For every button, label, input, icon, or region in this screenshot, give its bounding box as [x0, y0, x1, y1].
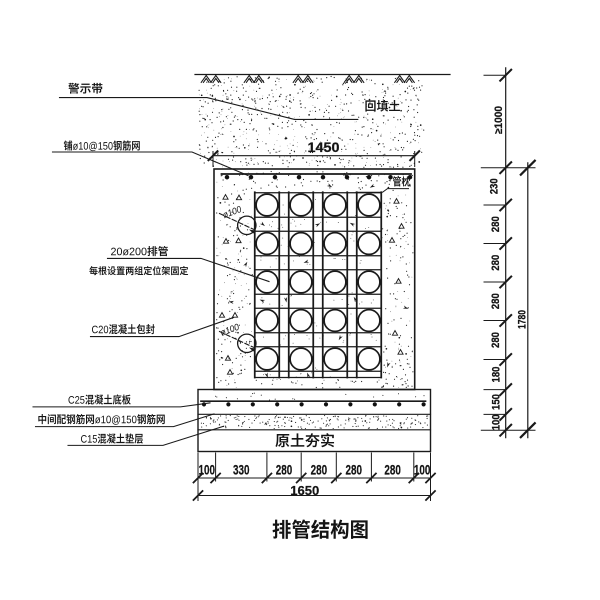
svg-text:280: 280 — [490, 216, 502, 232]
svg-text:280: 280 — [276, 462, 293, 478]
svg-text:280: 280 — [311, 462, 328, 478]
svg-text:1780: 1780 — [517, 310, 529, 329]
svg-text:150: 150 — [491, 394, 503, 410]
svg-text:280: 280 — [490, 293, 502, 309]
svg-text:≥1000: ≥1000 — [493, 106, 505, 134]
svg-text:100: 100 — [199, 462, 216, 478]
svg-text:280: 280 — [490, 332, 502, 348]
svg-text:100: 100 — [491, 414, 503, 430]
svg-text:230: 230 — [489, 178, 501, 194]
svg-text:280: 280 — [384, 462, 401, 478]
svg-text:280: 280 — [490, 255, 502, 271]
svg-text:330: 330 — [233, 462, 250, 478]
svg-text:1450: 1450 — [308, 140, 340, 155]
svg-text:280: 280 — [346, 462, 363, 478]
svg-text:100: 100 — [414, 462, 431, 478]
svg-text:1650: 1650 — [290, 483, 319, 498]
svg-text:180: 180 — [491, 367, 503, 383]
